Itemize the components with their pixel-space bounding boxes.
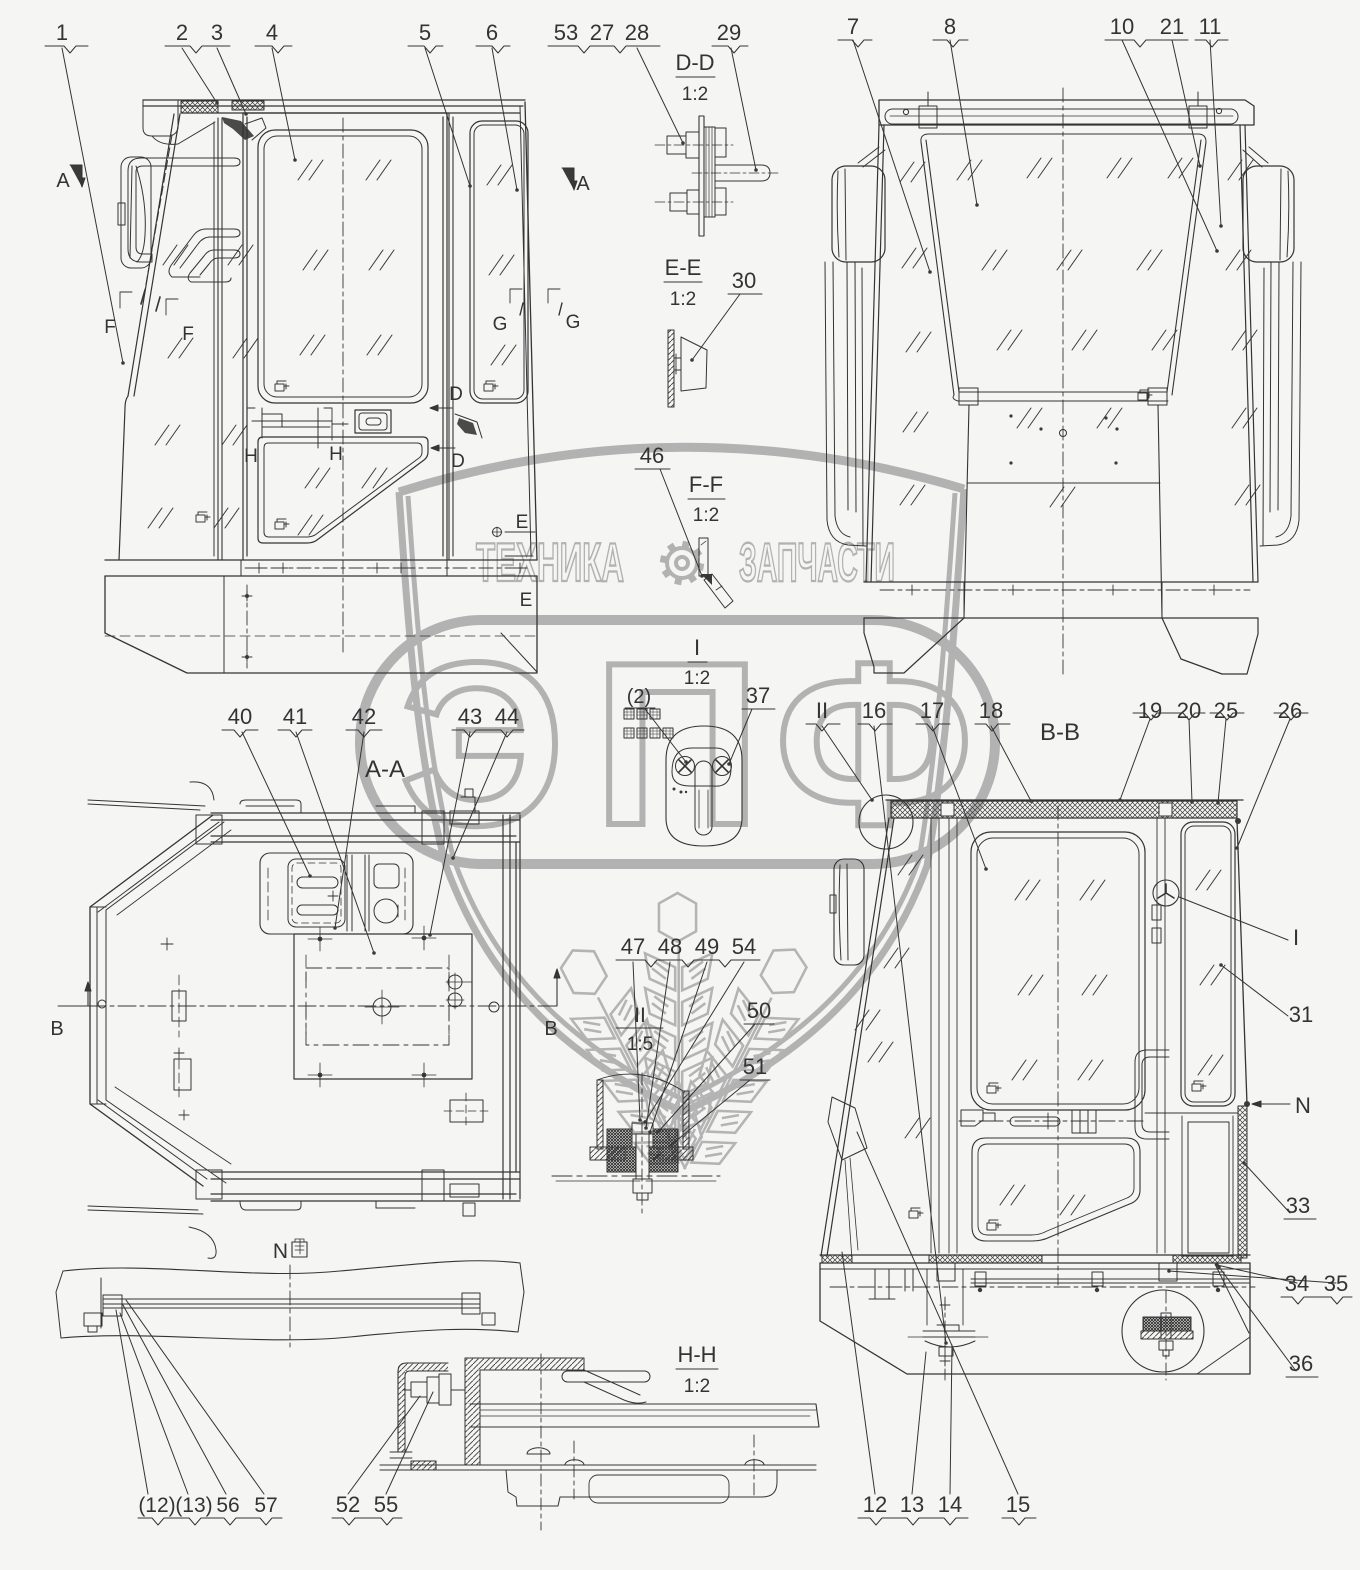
svg-text:A: A xyxy=(576,173,590,195)
svg-text:13: 13 xyxy=(900,1492,924,1517)
svg-text:1:2: 1:2 xyxy=(693,505,719,526)
svg-text:42: 42 xyxy=(352,704,376,729)
svg-text:H: H xyxy=(329,444,343,465)
svg-text:B: B xyxy=(544,1018,557,1040)
svg-text:27: 27 xyxy=(590,20,614,45)
svg-text:ТЕХНИКА: ТЕХНИКА xyxy=(476,531,624,593)
svg-text:29: 29 xyxy=(717,20,741,45)
svg-text:57: 57 xyxy=(254,1494,277,1517)
svg-text:10: 10 xyxy=(1110,14,1134,39)
svg-text:N: N xyxy=(1295,1093,1311,1118)
svg-text:4: 4 xyxy=(266,20,278,45)
svg-text:50: 50 xyxy=(747,998,771,1023)
svg-text:53: 53 xyxy=(554,20,578,45)
svg-text:1: 1 xyxy=(56,20,68,45)
svg-text:П: П xyxy=(594,615,761,874)
svg-text:31: 31 xyxy=(1289,1002,1313,1027)
svg-text:28: 28 xyxy=(625,20,649,45)
svg-text:14: 14 xyxy=(938,1492,962,1517)
svg-text:II: II xyxy=(816,698,828,723)
svg-text:37: 37 xyxy=(746,683,770,708)
svg-text:A: A xyxy=(56,170,70,192)
svg-text:2: 2 xyxy=(176,20,188,45)
svg-text:H: H xyxy=(244,446,258,467)
svg-text:55: 55 xyxy=(374,1492,398,1517)
svg-text:F-F: F-F xyxy=(689,472,723,497)
svg-text:43: 43 xyxy=(458,704,482,729)
svg-text:B-B: B-B xyxy=(1040,719,1080,746)
svg-text:(2): (2) xyxy=(627,686,651,708)
svg-text:I: I xyxy=(694,635,700,660)
svg-text:G: G xyxy=(566,312,581,333)
svg-text:21: 21 xyxy=(1160,14,1184,39)
svg-text:48: 48 xyxy=(658,934,682,959)
svg-text:E-E: E-E xyxy=(665,255,702,280)
svg-text:5: 5 xyxy=(419,20,431,45)
svg-text:33: 33 xyxy=(1286,1193,1310,1218)
svg-text:I: I xyxy=(1293,925,1299,950)
svg-text:(13): (13) xyxy=(175,1494,212,1517)
svg-text:E: E xyxy=(516,512,529,533)
svg-text:47: 47 xyxy=(621,934,645,959)
svg-text:30: 30 xyxy=(732,268,756,293)
svg-text:7: 7 xyxy=(847,14,859,39)
svg-text:12: 12 xyxy=(863,1492,887,1517)
svg-text:15: 15 xyxy=(1006,1492,1030,1517)
svg-text:11: 11 xyxy=(1199,14,1222,39)
svg-text:D: D xyxy=(449,384,463,405)
svg-text:46: 46 xyxy=(640,443,664,468)
svg-text:F: F xyxy=(104,317,116,338)
svg-text:51: 51 xyxy=(743,1054,767,1079)
svg-text:17: 17 xyxy=(920,698,944,723)
svg-text:8: 8 xyxy=(944,14,956,39)
svg-text:F: F xyxy=(182,324,194,345)
svg-text:Э: Э xyxy=(399,615,564,874)
svg-text:3: 3 xyxy=(211,20,223,45)
svg-text:(12): (12) xyxy=(138,1494,175,1517)
svg-text:Ф: Ф xyxy=(775,615,973,874)
svg-text:1:5: 1:5 xyxy=(627,1034,653,1055)
svg-text:D-D: D-D xyxy=(675,50,714,75)
svg-text:G: G xyxy=(493,314,508,335)
svg-text:44: 44 xyxy=(495,704,519,729)
svg-text:52: 52 xyxy=(336,1492,360,1517)
svg-text:49: 49 xyxy=(695,934,719,959)
svg-text:N: N xyxy=(273,1240,288,1263)
svg-text:B: B xyxy=(50,1018,63,1040)
svg-text:E: E xyxy=(520,590,533,611)
svg-text:16: 16 xyxy=(862,698,886,723)
svg-text:18: 18 xyxy=(979,698,1003,723)
svg-text:A-A: A-A xyxy=(365,756,405,783)
svg-text:56: 56 xyxy=(216,1494,239,1517)
svg-text:36: 36 xyxy=(1289,1351,1313,1376)
svg-text:1:2: 1:2 xyxy=(684,668,710,689)
svg-text:6: 6 xyxy=(486,20,498,45)
svg-text:1:2: 1:2 xyxy=(684,1376,710,1397)
svg-text:H-H: H-H xyxy=(677,1342,716,1367)
svg-text:D: D xyxy=(451,451,465,472)
svg-text:41: 41 xyxy=(283,704,307,729)
svg-text:1:2: 1:2 xyxy=(682,84,708,105)
svg-text:1:2: 1:2 xyxy=(670,289,696,310)
svg-text:40: 40 xyxy=(228,704,252,729)
svg-text:54: 54 xyxy=(732,934,756,959)
